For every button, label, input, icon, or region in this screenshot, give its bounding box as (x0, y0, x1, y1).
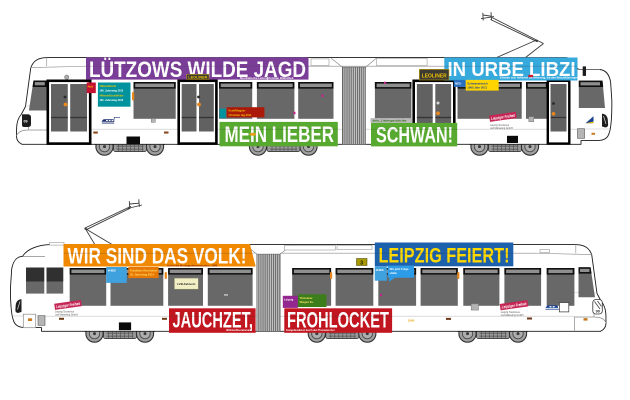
svg-text:3: 3 (360, 260, 363, 266)
svg-text:statte: statte (390, 271, 398, 275)
svg-text:#HBS: #HBS (108, 269, 116, 273)
svg-text:und Marketing GmbH: und Marketing GmbH (501, 314, 524, 317)
svg-text:#brb: #brb (88, 85, 94, 89)
svg-text:09: 09 (24, 120, 28, 124)
svg-text:180. Jahrestag 2013: 180. Jahrestag 2013 (100, 90, 124, 93)
svg-text:Weigen Ev.: Weigen Ev. (300, 300, 314, 304)
svg-text:MEIN LIEBER: MEIN LIEBER (225, 122, 335, 147)
svg-text:Kraft/Wagner: Kraft/Wagner (229, 109, 246, 113)
svg-text:Festgottesdienst durch den Tho: Festgottesdienst durch den Thomanerchor (286, 329, 335, 332)
svg-text:181. Jahrestag 2013: 181. Jahrestag 2013 (100, 99, 124, 102)
svg-text:und Marketing GmbH: und Marketing GmbH (55, 314, 78, 317)
svg-text:Leipzig: Leipzig (284, 298, 294, 302)
svg-text:25. Jahrestag 2014: 25. Jahrestag 2014 (130, 273, 154, 277)
svg-text:#WendeBocktWeiter: #WendeBocktWeiter (100, 94, 124, 97)
svg-text:Weihnachtsoratorium I: Weihnachtsoratorium I (226, 329, 252, 332)
svg-text:und Marketing GmbH: und Marketing GmbH (490, 127, 513, 130)
svg-text:Können sich höflichst Bevölker: Können sich höflichst Bevölkerung, via d… (500, 76, 579, 80)
svg-text:NEU: NEU (455, 82, 461, 86)
svg-text:Christian Bibliothek: Christian Bibliothek (267, 76, 294, 80)
svg-text:90: 90 (596, 310, 600, 314)
svg-text:LEOLINER: LEOLINER (422, 74, 447, 80)
svg-text:1565: 1565 (408, 319, 415, 323)
svg-text:Thomaner: Thomaner (300, 296, 313, 300)
svg-text:Musikalische Leitung: Musikalische Leitung (240, 76, 269, 80)
svg-text:Christian tag 2011: Christian tag 2011 (229, 113, 253, 117)
svg-text:LEOLINER: LEOLINER (188, 75, 207, 79)
svg-text:1965 Jahr 2011: 1965 Jahr 2011 (467, 86, 487, 90)
svg-text:LEIPZIG FEIERT!: LEIPZIG FEIERT! (379, 243, 510, 267)
svg-text:Auf in die Montagsdemonstratio: Auf in die Montagsdemonstration, 1989 (167, 264, 218, 268)
svg-text:#WendeBockt: #WendeBockt (100, 85, 117, 88)
svg-text:WIR SIND DAS VOLK!: WIR SIND DAS VOLK! (68, 244, 247, 269)
svg-text:Friedliche Revolution: Friedliche Revolution (130, 268, 158, 272)
svg-text:#HBS: #HBS (376, 268, 384, 272)
svg-text:LVB-Fahrerin: LVB-Fahrerin (177, 282, 195, 286)
svg-text:SCHWAN!: SCHWAN! (376, 122, 453, 147)
